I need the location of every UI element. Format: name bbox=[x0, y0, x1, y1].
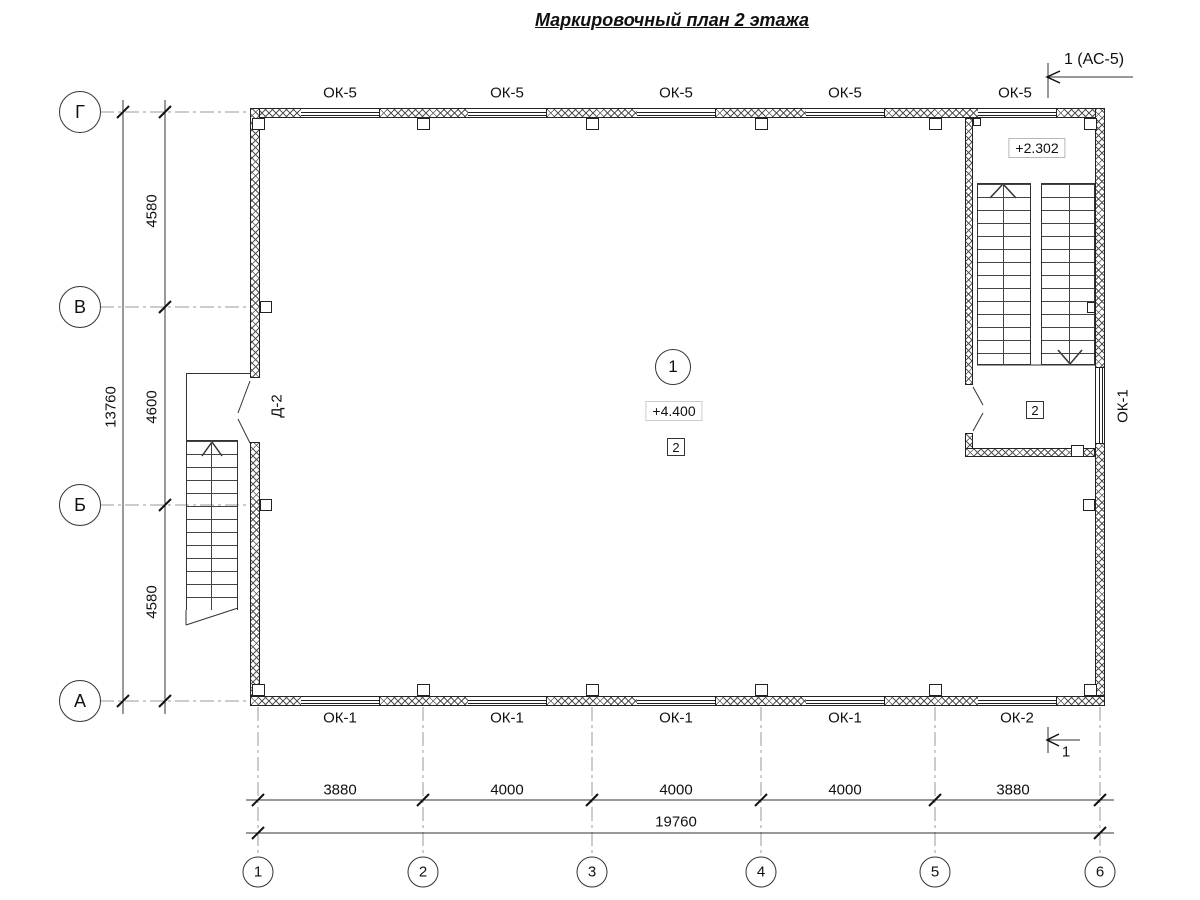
pilaster bbox=[929, 684, 942, 696]
axis-label: А bbox=[74, 691, 86, 712]
col-axis-bubble-6: 6 bbox=[1085, 857, 1116, 888]
pilaster bbox=[1084, 684, 1097, 696]
window-label-top-3: ОК-5 bbox=[659, 85, 693, 102]
window-opening-bottom-1 bbox=[301, 696, 380, 706]
pilaster bbox=[755, 684, 768, 696]
window-opening-top-2 bbox=[468, 108, 546, 118]
floor-plan-canvas: Маркировочный план 2 этажа bbox=[0, 0, 1200, 900]
wall-pier bbox=[715, 696, 807, 706]
stair-flight-centerline bbox=[1003, 183, 1004, 365]
pilaster bbox=[417, 684, 430, 696]
window-label-top-2: ОК-5 bbox=[490, 85, 524, 102]
window-opening-top-4 bbox=[806, 108, 884, 118]
window-opening-top-5 bbox=[978, 108, 1056, 118]
wall-pier bbox=[250, 696, 302, 706]
window-label-top-1: ОК-5 bbox=[323, 85, 357, 102]
axis-label: В bbox=[74, 297, 86, 318]
pilaster bbox=[586, 684, 599, 696]
axis-label: Б bbox=[74, 495, 86, 516]
section-label-bottom: 1 bbox=[1062, 744, 1070, 761]
stair-flight-right bbox=[1041, 183, 1095, 365]
pilaster bbox=[1071, 445, 1084, 457]
wall-pier bbox=[884, 696, 979, 706]
dim-bottom-segment-1: 3880 bbox=[323, 782, 356, 799]
room-number-tag: 1 bbox=[655, 349, 691, 385]
pilaster bbox=[929, 118, 942, 130]
wall-right-upper bbox=[1095, 108, 1105, 368]
col-axis-bubble-3: 3 bbox=[577, 857, 608, 888]
axis-label: 4 bbox=[757, 864, 765, 881]
wall-pier bbox=[379, 696, 469, 706]
wall-pier bbox=[715, 108, 807, 118]
finish-tag-hall: 2 bbox=[667, 438, 685, 456]
finish-number: 2 bbox=[1031, 403, 1038, 418]
dim-left-segment-2: 4600 bbox=[144, 390, 161, 423]
axis-label: 5 bbox=[931, 864, 939, 881]
window-opening-bottom-5 bbox=[978, 696, 1056, 706]
dim-bottom-total: 19760 bbox=[655, 814, 697, 831]
exterior-stair-flight bbox=[186, 440, 238, 610]
row-axis-bubble-g: Г bbox=[59, 91, 101, 133]
col-axis-bubble-4: 4 bbox=[746, 857, 777, 888]
pilaster bbox=[586, 118, 599, 130]
section-label-top: 1 (АС-5) bbox=[1064, 51, 1124, 69]
door-label-d2: Д-2 bbox=[269, 394, 286, 418]
finish-tag-stair-room: 2 bbox=[1026, 401, 1044, 419]
wall-pier bbox=[1056, 696, 1105, 706]
stair-flight-left bbox=[977, 183, 1031, 365]
wall-pier bbox=[379, 108, 469, 118]
pilaster bbox=[1083, 499, 1095, 511]
row-axis-bubble-a: А bbox=[59, 680, 101, 722]
dim-bottom-segment-4: 4000 bbox=[828, 782, 861, 799]
pilaster bbox=[260, 301, 272, 313]
dim-bottom-segment-2: 4000 bbox=[490, 782, 523, 799]
window-opening-bottom-2 bbox=[468, 696, 546, 706]
window-label-bottom-1: ОК-1 bbox=[323, 710, 357, 727]
wall-left-upper bbox=[250, 108, 260, 378]
stairwell-west-wall-upper bbox=[965, 118, 973, 385]
axis-label: 6 bbox=[1096, 864, 1104, 881]
dim-bottom-segment-5: 3880 bbox=[996, 782, 1029, 799]
dimension-ticks bbox=[117, 106, 1106, 839]
window-opening-top-3 bbox=[637, 108, 715, 118]
window-label-bottom-4: ОК-1 bbox=[828, 710, 862, 727]
col-axis-bubble-1: 1 bbox=[243, 857, 274, 888]
row-axis-bubble-v: В bbox=[59, 286, 101, 328]
pilaster bbox=[252, 118, 265, 130]
dim-left-segment-3: 4580 bbox=[144, 585, 161, 618]
col-axis-bubble-2: 2 bbox=[408, 857, 439, 888]
window-opening-bottom-4 bbox=[806, 696, 884, 706]
wall-pier bbox=[546, 108, 638, 118]
door-leaf-stairwell bbox=[973, 387, 983, 431]
window-label-bottom-5: ОК-2 bbox=[1000, 710, 1034, 727]
dim-bottom-segment-3: 4000 bbox=[659, 782, 692, 799]
exterior-stair-landing bbox=[186, 373, 251, 441]
window-label-right: ОК-1 bbox=[1115, 389, 1132, 423]
pilaster bbox=[260, 499, 272, 511]
wall-pier bbox=[884, 108, 979, 118]
window-label-top-5: ОК-5 bbox=[998, 85, 1032, 102]
window-label-top-4: ОК-5 bbox=[828, 85, 862, 102]
wall-left-lower bbox=[250, 442, 260, 696]
level-mark-hall: +4.400 bbox=[645, 401, 702, 421]
stair-flight-centerline bbox=[211, 440, 212, 610]
pilaster bbox=[973, 118, 981, 126]
dim-left-total: 13760 bbox=[103, 386, 120, 428]
pilaster bbox=[252, 684, 265, 696]
window-opening-bottom-3 bbox=[637, 696, 715, 706]
stair-flight-centerline bbox=[1069, 183, 1070, 365]
pilaster bbox=[1084, 118, 1097, 130]
window-label-bottom-3: ОК-1 bbox=[659, 710, 693, 727]
row-axis-bubble-b: Б bbox=[59, 484, 101, 526]
wall-right-lower bbox=[1095, 443, 1105, 696]
axis-label: 1 bbox=[254, 864, 262, 881]
window-label-bottom-2: ОК-1 bbox=[490, 710, 524, 727]
finish-number: 2 bbox=[672, 440, 679, 455]
window-opening-top-1 bbox=[301, 108, 380, 118]
axis-label: Г bbox=[75, 102, 85, 123]
pilaster bbox=[417, 118, 430, 130]
window-opening-right bbox=[1095, 368, 1105, 443]
wall-pier bbox=[546, 696, 638, 706]
dim-left-segment-1: 4580 bbox=[144, 194, 161, 227]
level-mark-stair-landing: +2.302 bbox=[1008, 138, 1065, 158]
room-number: 1 bbox=[668, 357, 677, 377]
col-axis-bubble-5: 5 bbox=[920, 857, 951, 888]
stair-direction-arrows bbox=[202, 184, 1082, 456]
axis-label: 3 bbox=[588, 864, 596, 881]
exterior-stair-taper bbox=[186, 608, 238, 625]
pilaster bbox=[755, 118, 768, 130]
axis-label: 2 bbox=[419, 864, 427, 881]
